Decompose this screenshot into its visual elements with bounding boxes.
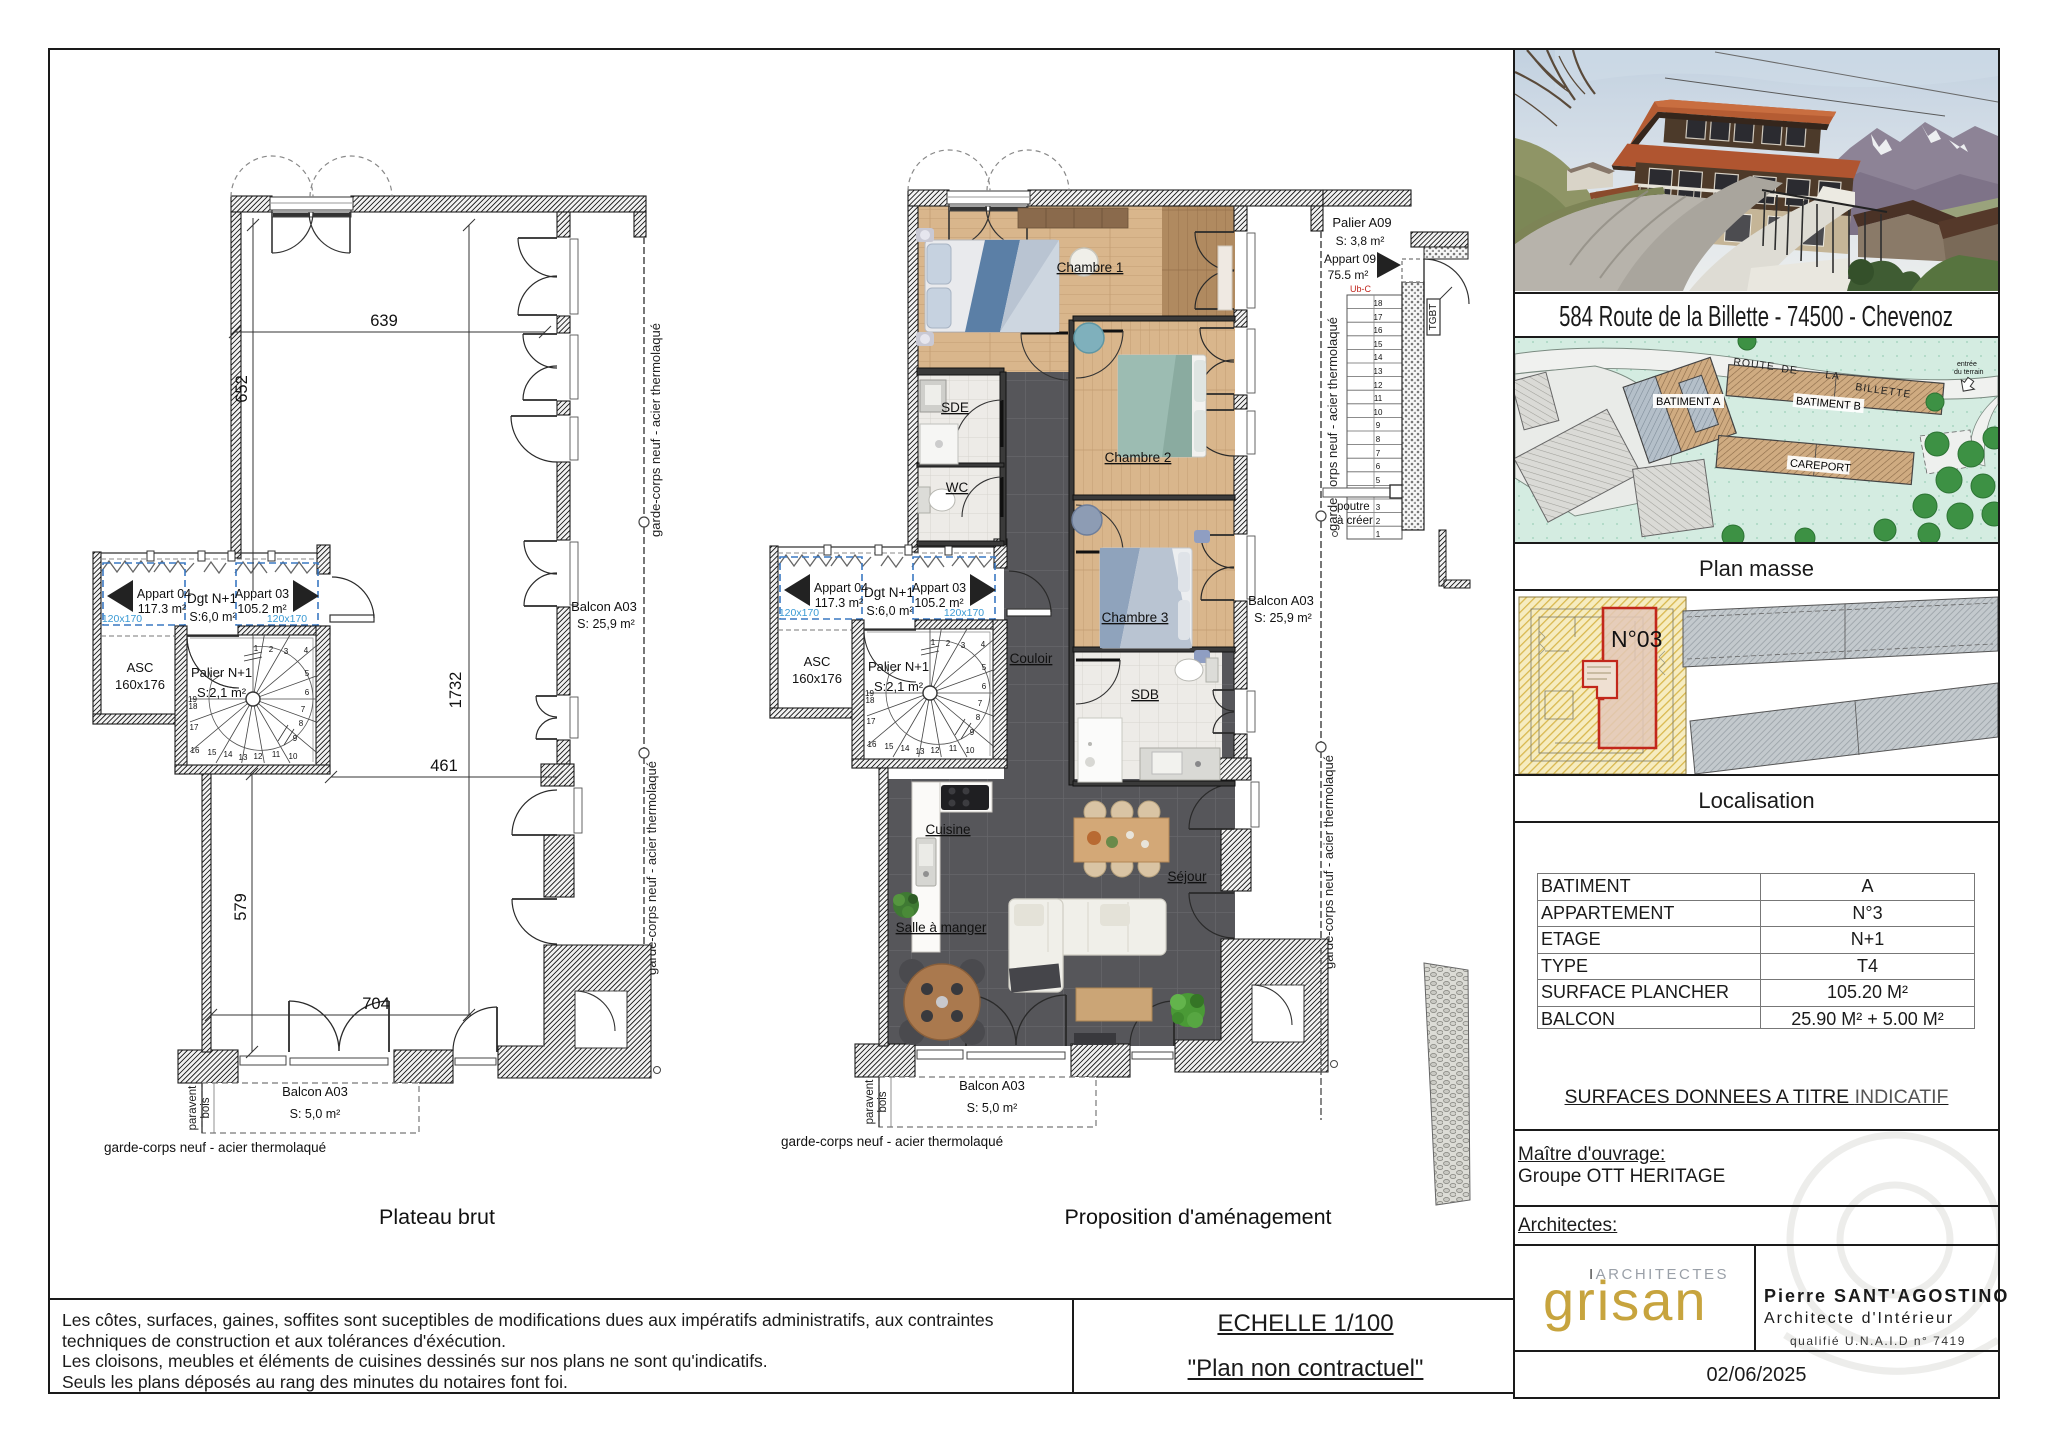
- svg-text:WC: WC: [946, 480, 969, 495]
- svg-text:16: 16: [191, 746, 200, 755]
- svg-text:14: 14: [1374, 353, 1383, 362]
- svg-text:6: 6: [305, 688, 310, 697]
- svg-text:S: 3,8 m²: S: 3,8 m²: [1336, 234, 1385, 248]
- svg-text:Chambre 1: Chambre 1: [1057, 260, 1124, 275]
- svg-text:8: 8: [1376, 435, 1381, 444]
- svg-text:12: 12: [1374, 381, 1383, 390]
- svg-text:4: 4: [304, 646, 309, 655]
- svg-text:Balcon A03: Balcon A03: [282, 1084, 348, 1099]
- svg-text:1: 1: [1376, 530, 1381, 539]
- svg-text:Palier A09: Palier A09: [1332, 215, 1391, 230]
- svg-text:S:6,0 m²: S:6,0 m²: [189, 610, 236, 624]
- svg-text:Couloir: Couloir: [1010, 651, 1053, 666]
- svg-text:garde-corps neuf - acier therm: garde-corps neuf - acier thermolaqué: [104, 1140, 326, 1155]
- svg-text:14: 14: [224, 750, 233, 759]
- svg-text:SDE: SDE: [941, 400, 969, 415]
- svg-text:Ub-C: Ub-C: [1350, 284, 1372, 294]
- svg-text:18: 18: [1374, 299, 1383, 308]
- svg-text:120x170: 120x170: [102, 613, 142, 625]
- svg-text:à créer: à créer: [1337, 515, 1373, 527]
- svg-text:Chambre 2: Chambre 2: [1105, 450, 1172, 465]
- svg-text:17: 17: [1374, 313, 1383, 322]
- svg-text:SDB: SDB: [1131, 687, 1159, 702]
- svg-text:639: 639: [370, 312, 398, 330]
- svg-text:6: 6: [1376, 462, 1381, 471]
- svg-text:Séjour: Séjour: [1167, 869, 1207, 884]
- svg-text:13: 13: [1374, 367, 1383, 376]
- svg-text:7: 7: [1376, 449, 1381, 458]
- svg-text:10: 10: [289, 752, 298, 761]
- svg-text:bois: bois: [200, 1097, 212, 1118]
- svg-text:2: 2: [269, 645, 274, 654]
- svg-text:15: 15: [1374, 340, 1383, 349]
- svg-text:Appart 04: Appart 04: [137, 587, 191, 601]
- svg-text:704: 704: [362, 995, 390, 1013]
- svg-text:10: 10: [1374, 408, 1383, 417]
- svg-text:Chambre 3: Chambre 3: [1102, 610, 1169, 625]
- svg-text:Salle à manger: Salle à manger: [896, 920, 987, 935]
- svg-text:S: 5,0 m²: S: 5,0 m²: [290, 1107, 341, 1121]
- svg-text:9: 9: [1376, 421, 1381, 430]
- svg-text:ASC: ASC: [127, 660, 154, 675]
- svg-text:1: 1: [254, 644, 259, 653]
- svg-text:160x176: 160x176: [115, 677, 165, 692]
- svg-text:5: 5: [305, 669, 310, 678]
- svg-text:7: 7: [301, 705, 306, 714]
- svg-text:1732: 1732: [447, 672, 465, 709]
- svg-text:TGBT: TGBT: [1428, 304, 1439, 331]
- svg-text:5: 5: [1376, 476, 1381, 485]
- svg-text:15: 15: [208, 748, 217, 757]
- svg-text:117.3 m²: 117.3 m²: [138, 602, 186, 616]
- svg-text:120x170: 120x170: [267, 613, 307, 625]
- svg-text:S:2,1 m²: S:2,1 m²: [197, 685, 247, 700]
- svg-text:461: 461: [430, 757, 458, 775]
- svg-text:paravent: paravent: [187, 1085, 199, 1131]
- svg-text:poutre: poutre: [1337, 501, 1370, 513]
- svg-text:garde-corps neuf - acier therm: garde-corps neuf - acier thermolaqué: [644, 761, 659, 975]
- svg-text:Appart 03: Appart 03: [235, 587, 289, 601]
- svg-text:Balcon A03: Balcon A03: [571, 599, 637, 614]
- svg-text:Proposition d'aménagement: Proposition d'aménagement: [1064, 1205, 1331, 1229]
- svg-text:579: 579: [232, 893, 250, 921]
- svg-text:Plateau brut: Plateau brut: [379, 1205, 495, 1229]
- svg-text:11: 11: [1374, 394, 1383, 403]
- svg-text:17: 17: [190, 723, 199, 732]
- svg-text:16: 16: [1374, 326, 1383, 335]
- svg-text:garde-corps neuf - acier therm: garde-corps neuf - acier thermolaqué: [648, 323, 663, 537]
- svg-text:12: 12: [254, 752, 263, 761]
- svg-text:652: 652: [233, 375, 251, 403]
- svg-text:75.5 m²: 75.5 m²: [1328, 268, 1369, 282]
- svg-text:3: 3: [1376, 503, 1381, 512]
- svg-text:13: 13: [239, 753, 248, 762]
- svg-text:S: 25,9 m²: S: 25,9 m²: [577, 617, 635, 631]
- svg-text:9: 9: [293, 734, 298, 743]
- svg-text:2: 2: [1376, 517, 1381, 526]
- svg-text:19: 19: [188, 695, 197, 704]
- svg-text:Appart 09: Appart 09: [1324, 252, 1376, 266]
- svg-text:Palier N+1: Palier N+1: [191, 665, 252, 680]
- svg-text:Dgt N+1: Dgt N+1: [187, 591, 237, 606]
- svg-text:3: 3: [284, 647, 289, 656]
- svg-text:8: 8: [299, 719, 304, 728]
- svg-text:Cuisine: Cuisine: [925, 822, 970, 837]
- svg-text:11: 11: [272, 750, 281, 759]
